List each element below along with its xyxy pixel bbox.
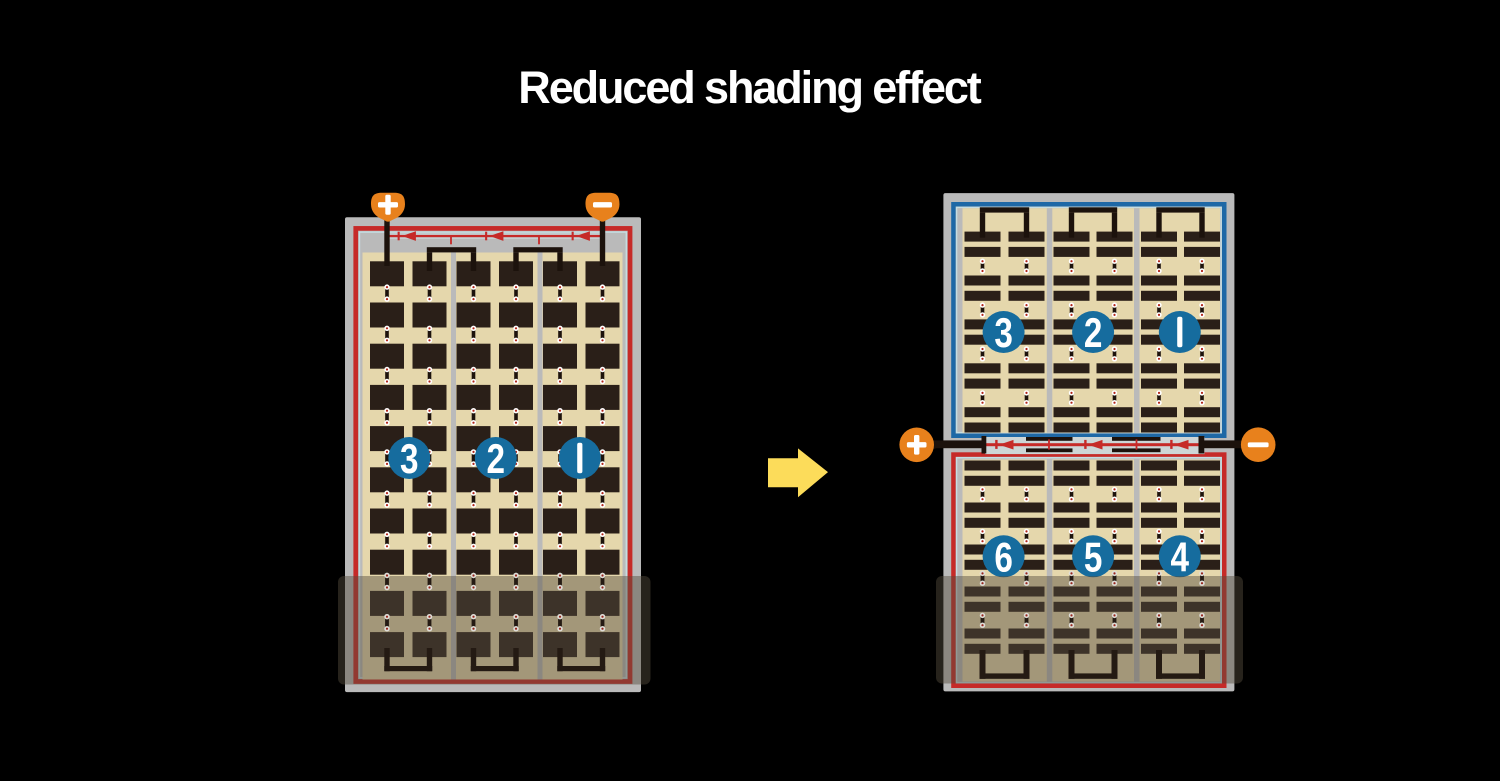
svg-text:Reduced shading effect: Reduced shading effect (518, 62, 982, 113)
svg-text:4: 4 (1171, 534, 1190, 581)
svg-text:2: 2 (487, 435, 506, 482)
svg-text:3: 3 (994, 309, 1013, 356)
svg-text:5: 5 (1084, 534, 1103, 581)
svg-text:6: 6 (994, 534, 1013, 581)
svg-text:3: 3 (400, 435, 419, 482)
svg-text:2: 2 (1084, 309, 1103, 356)
